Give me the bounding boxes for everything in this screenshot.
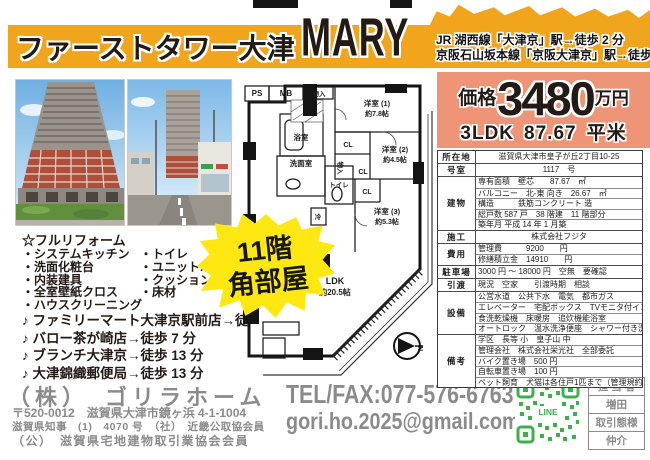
floor-area: 87.67 xyxy=(524,124,577,143)
row-label: 施工 xyxy=(438,231,476,243)
property-details-table: 所在地 滋賀県大津市皇子が丘2丁目10-25 号室 1117 号 建物 専有面積… xyxy=(437,150,643,388)
line-qr-code: LINE xyxy=(515,379,581,445)
row-value: 専有面積 壁芯 87.67 ㎡ xyxy=(476,177,642,188)
label-room2: 洋室 (2) xyxy=(382,144,409,154)
access-line-2: 京阪石山坂本線「京阪大津京」駅→徒歩 4 分 xyxy=(436,48,648,63)
table-row: 号室 1117 号 xyxy=(438,163,642,176)
property-title-logo: MARY xyxy=(301,8,409,69)
email-address: gori.ho.2025@gmail.com xyxy=(286,408,520,435)
building-photo-closeup xyxy=(15,79,125,226)
building-photo-street xyxy=(127,79,232,226)
row-value: 滋賀県大津市皇子が丘2丁目10-25 xyxy=(476,151,642,162)
reform-item: ・システムキッチン xyxy=(22,248,140,261)
transaction-type-value: 仲介 xyxy=(589,431,644,449)
layout-type: 3LDK xyxy=(460,124,514,143)
license-line-2: （公） 滋賀県宅地建物取引業協会会員 xyxy=(12,432,249,449)
row-value: ペット飼育 犬猫は各住戸1匹まで（管理規約参照） xyxy=(476,377,642,388)
table-row: 所在地 滋賀県大津市皇子が丘2丁目10-25 xyxy=(438,151,642,163)
table-row: 引渡 現況 空家 引渡時期 相談 xyxy=(438,278,642,291)
label-ps: PS xyxy=(252,89,263,98)
building-photo-street-art xyxy=(128,80,232,226)
row-value: 管理費 9200 円 xyxy=(476,244,642,255)
label-mb: MB xyxy=(280,89,293,98)
reform-item: ・ハウスクリーニング xyxy=(22,299,140,312)
row-value: バイク置き場 500 円 xyxy=(476,356,642,367)
compass-icon: N xyxy=(394,333,423,359)
reform-item: ・トイレ xyxy=(140,248,188,261)
reform-item: ・床材 xyxy=(140,286,176,299)
row-value: 1117 号 xyxy=(476,164,642,175)
row-value: 公営水道 公共下水 電気 都市ガス xyxy=(476,292,642,303)
table-row: 設備 公営水道 公共下水 電気 都市ガス エレベーター 宅配ボックス TVモニタ… xyxy=(438,291,642,334)
label-room3-size: 約5.3帖 xyxy=(375,217,399,226)
row-value: 管理会社 株式会社栄光社 全部委託 xyxy=(476,345,642,356)
print-mark xyxy=(253,0,298,8)
agent-name: 増田 xyxy=(589,395,644,413)
print-mark xyxy=(390,0,412,8)
row-label: 号室 xyxy=(438,164,476,176)
row-value: 食洗乾燥機 床暖房 追炊機能浴室 xyxy=(476,313,642,324)
compass-n-label: N xyxy=(416,346,423,351)
label-room3: 洋室 (3) xyxy=(374,206,401,216)
row-value: 築年月 平成 14 年 1 月築 xyxy=(476,219,642,230)
label-cl3: CL xyxy=(362,189,372,196)
row-label: 建物 xyxy=(438,177,476,230)
row-label: 設備 xyxy=(438,292,476,334)
label-cl2: CL xyxy=(358,169,368,176)
reform-item: ・洗面化粧台 xyxy=(22,261,140,274)
qr-line-label: LINE xyxy=(538,407,558,417)
row-label: 駐車場 xyxy=(438,266,476,278)
row-value: エレベーター 宅配ボックス TVモニタ付インターホン xyxy=(476,302,642,313)
building-photo-closeup-art xyxy=(16,80,125,226)
row-label: 引渡 xyxy=(438,279,476,291)
transaction-type-label: 取引態様 xyxy=(589,413,644,431)
label-washroom: 洗面室 xyxy=(290,158,313,168)
price-unit: 万円 xyxy=(595,90,629,107)
label-room2-size: 約4.5帖 xyxy=(383,155,407,164)
table-row: 費用 管理費 9200 円 修繕積立金 14910 円 xyxy=(438,243,642,265)
line-qr-art: LINE xyxy=(515,379,581,445)
price-label: 価格 xyxy=(458,89,496,108)
property-title: ファーストタワー大津 xyxy=(16,27,295,67)
real-estate-flyer: ファーストタワー大津 MARY JR 湖西線「大津京」駅→徒歩 2 分 京阪石山… xyxy=(0,0,650,460)
row-label: 備考 xyxy=(438,335,476,388)
row-label: 費用 xyxy=(438,244,476,265)
access-line-1: JR 湖西線「大津京」駅→徒歩 2 分 xyxy=(436,33,648,48)
floor-area-unit: 平米 xyxy=(587,124,627,143)
row-value: 3000 円 ～ 18000 円 空無 要確認 xyxy=(476,266,642,277)
row-label: 所在地 xyxy=(438,151,476,163)
label-toilet: トイレ xyxy=(329,181,349,189)
row-value: バルコニー 北-東 向き 26.67 ㎡ xyxy=(476,188,642,199)
table-row: 備考 学区 長等 小 皇子山 中 管理会社 株式会社栄光社 全部委託 バイク置き… xyxy=(438,334,642,388)
layout-area-row: 3LDK 87.67 平米 xyxy=(460,124,626,143)
price-amount: 3480 xyxy=(497,75,594,122)
label-fridge: 冷 xyxy=(315,212,322,221)
label-room1-size: 約7.8帖 xyxy=(365,109,389,118)
station-access-banner: JR 湖西線「大津京」駅→徒歩 2 分 京阪石山坂本線「京阪大津京」駅→徒歩 4… xyxy=(430,2,650,68)
label-ldk: LDK xyxy=(326,276,345,286)
row-value: オートロック 温水洗浄便座 シャワー付き洗面台 xyxy=(476,323,642,334)
title-band: ファーストタワー大津 MARY xyxy=(8,25,432,68)
row-value: 構造 鉄筋コンクリート 造 xyxy=(476,198,642,209)
row-value: 現況 空家 引渡時期 相談 xyxy=(476,279,642,290)
row-value: 株式会社フジタ xyxy=(476,231,642,242)
label-storage-mid: 物入 xyxy=(336,162,345,176)
label-cl1: CL xyxy=(343,142,353,149)
row-value: 総戸数 587 戸 38 階建 11 階部分 xyxy=(476,209,642,220)
label-storage-top: 物入 xyxy=(313,89,327,98)
label-bath: 浴室 xyxy=(294,132,309,142)
row-value: 学区 長等 小 皇子山 中 xyxy=(476,335,642,346)
row-value: 自転車置き場 100 円 xyxy=(476,366,642,377)
price-row: 価格 3480 万円 xyxy=(458,75,629,122)
row-value: 修繕積立金 14910 円 xyxy=(476,254,642,265)
table-row: 施工 株式会社フジタ xyxy=(438,230,642,243)
price-box: 価格 3480 万円 3LDK 87.67 平米 xyxy=(437,72,650,148)
badge-text: 11階 角部屋 xyxy=(222,230,309,302)
table-row: 駐車場 3000 円 ～ 18000 円 空無 要確認 xyxy=(438,265,642,278)
label-room1: 洋室 (1) xyxy=(364,98,391,108)
table-row: 建物 専有面積 壁芯 87.67 ㎡ バルコニー 北-東 向き 26.67 ㎡ … xyxy=(438,176,642,230)
